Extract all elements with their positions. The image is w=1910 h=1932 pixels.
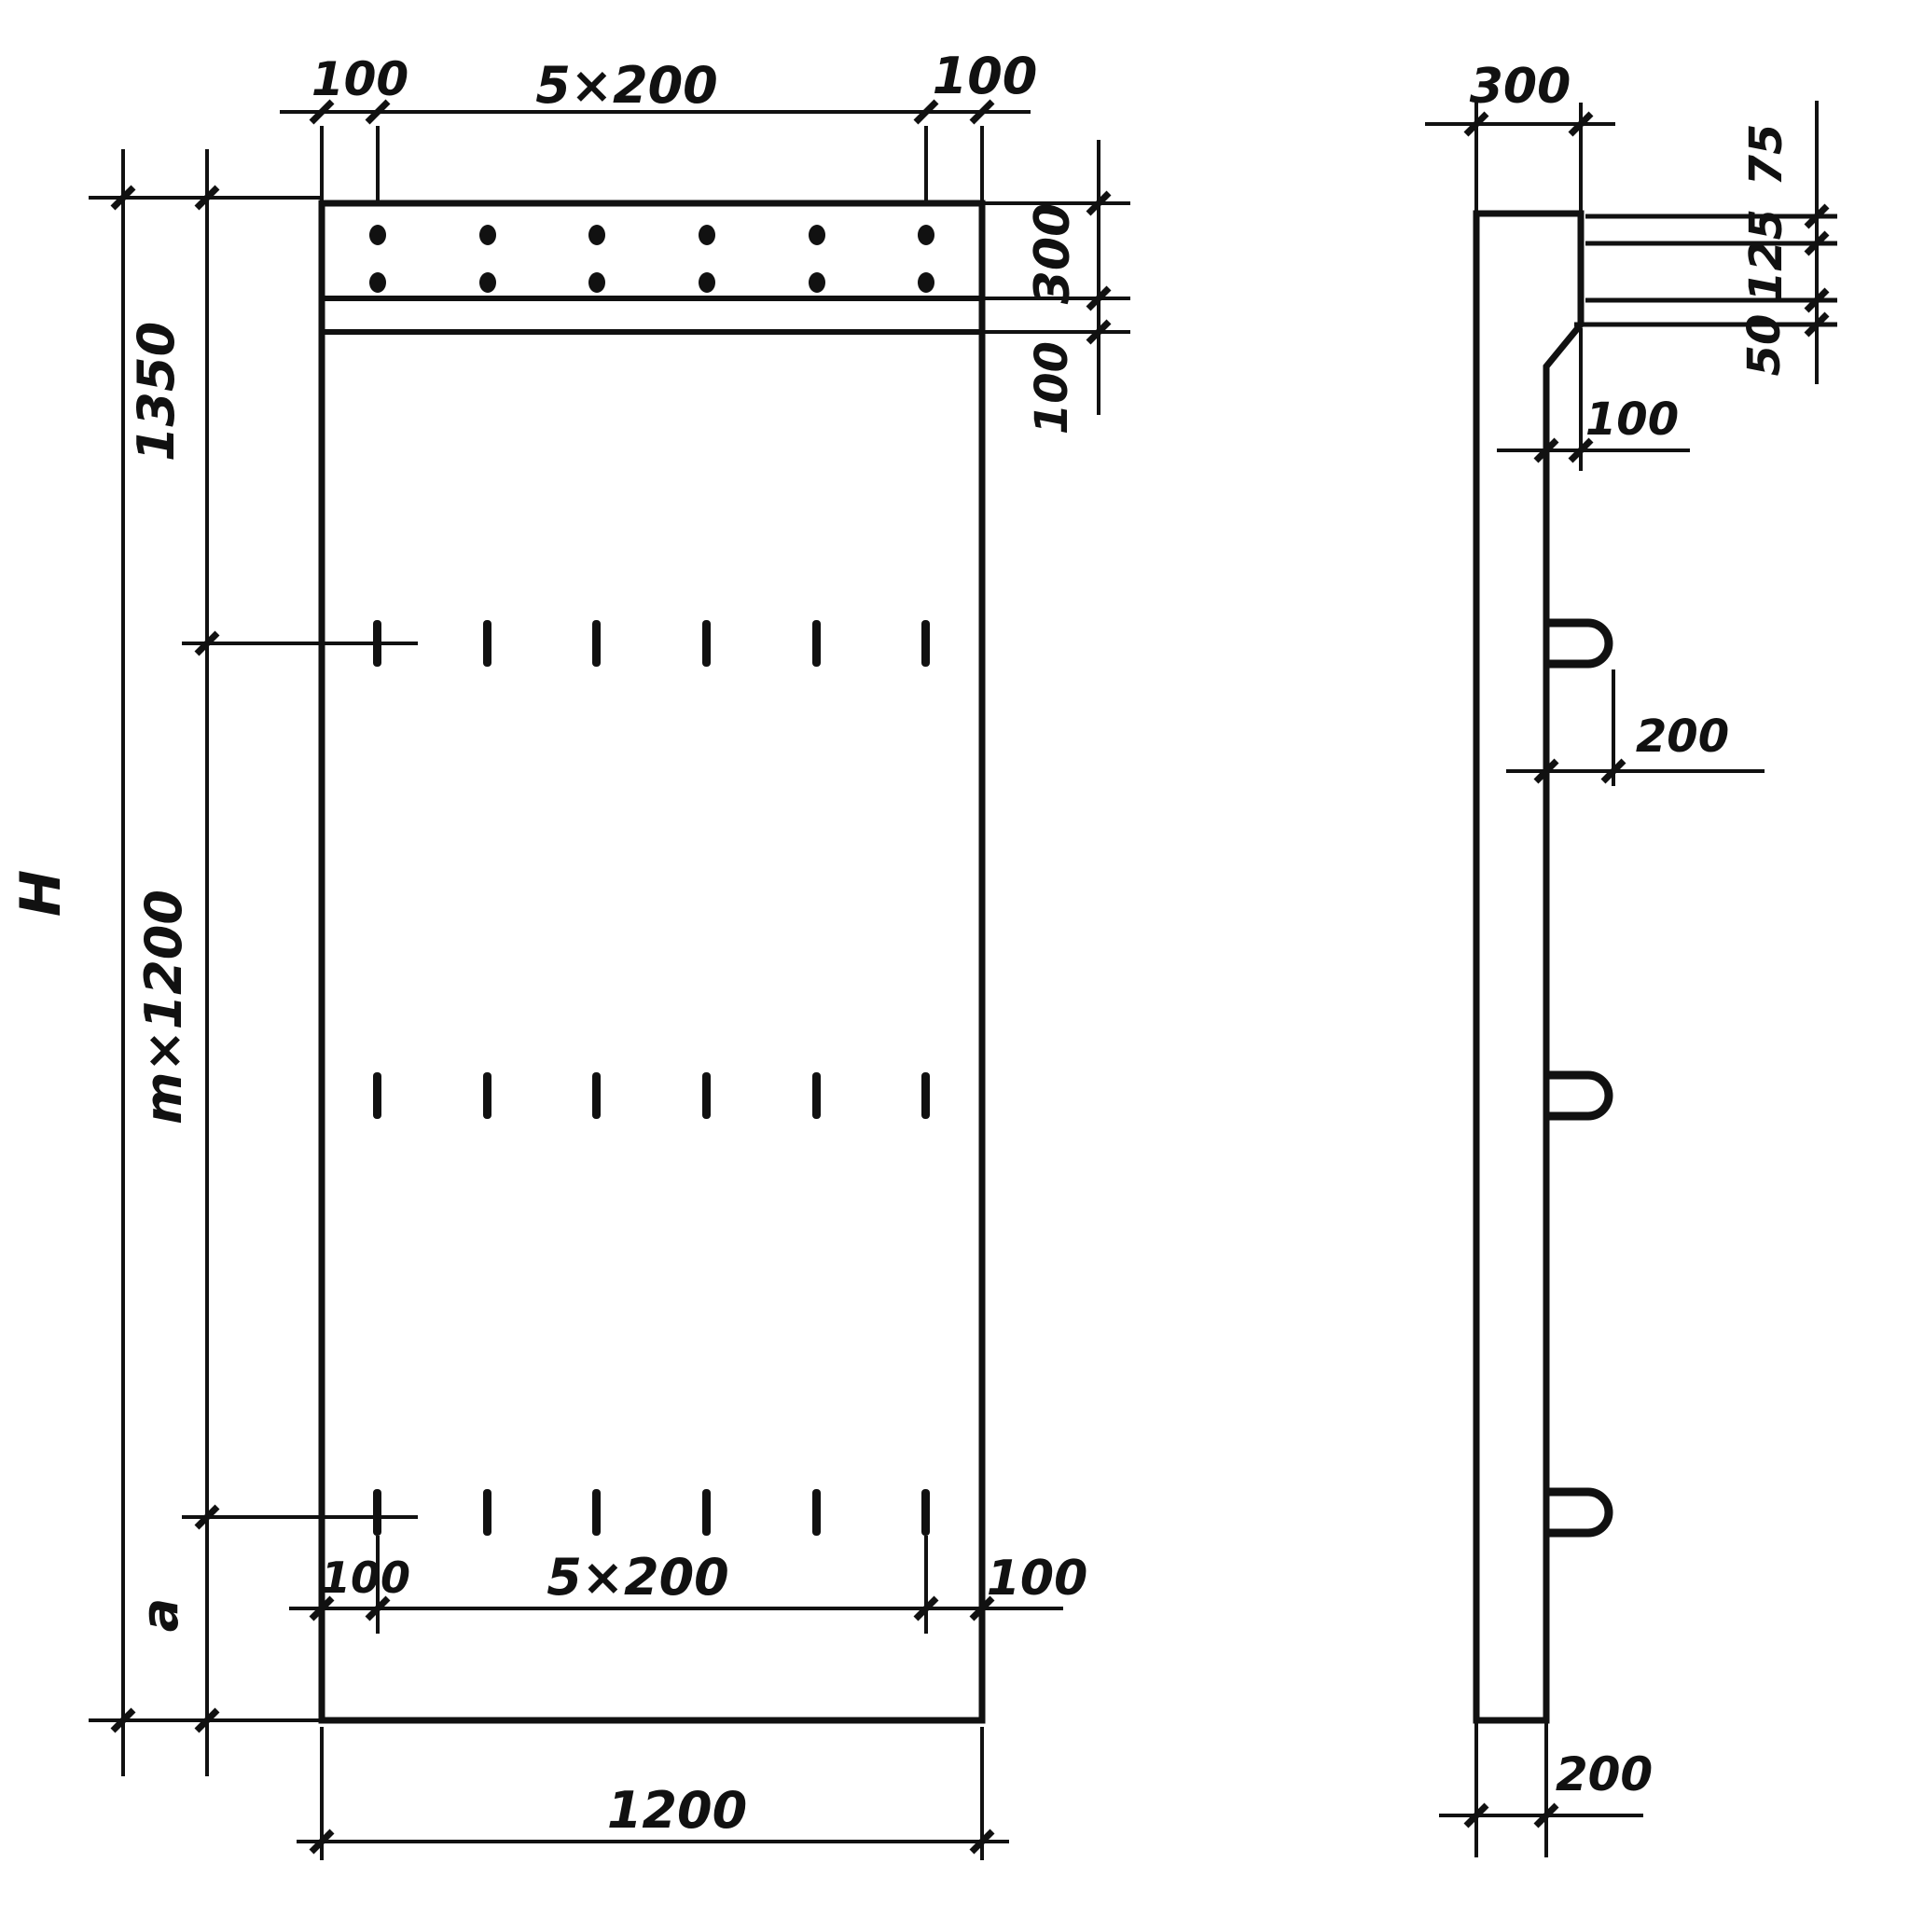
lifting-hook bbox=[1546, 1492, 1609, 1533]
technical-drawing: 100 5×200 100 300 100 1350 H m×1200 a bbox=[0, 0, 1910, 1932]
dim-label-sv-100: 100 bbox=[1585, 393, 1679, 446]
loop-dash bbox=[373, 1072, 381, 1119]
lifting-hook bbox=[1546, 623, 1609, 664]
anchor-dot bbox=[699, 272, 715, 293]
lifting-hook bbox=[1546, 1075, 1609, 1116]
loop-dash bbox=[921, 620, 930, 667]
dim-label-1350: 1350 bbox=[127, 322, 186, 462]
loop-dash bbox=[592, 620, 601, 667]
anchor-dot bbox=[809, 225, 825, 245]
anchor-dot bbox=[369, 225, 386, 245]
dim-label-bottom-right-100: 100 bbox=[987, 1551, 1088, 1607]
panel-outline bbox=[322, 203, 982, 1720]
loop-dash bbox=[702, 620, 711, 667]
dim-label-top-left-100: 100 bbox=[311, 52, 408, 106]
anchor-dot bbox=[699, 225, 715, 245]
dim-label-top-5x200: 5×200 bbox=[535, 56, 718, 115]
anchor-dot bbox=[918, 225, 934, 245]
loop-dash bbox=[812, 1072, 821, 1119]
front-view bbox=[322, 203, 982, 1720]
loop-dash bbox=[373, 1489, 381, 1536]
anchor-dot bbox=[369, 272, 386, 293]
dim-label-sv-75: 75 bbox=[1740, 124, 1792, 186]
dim-label-sv-300: 300 bbox=[1470, 59, 1571, 115]
anchor-dot bbox=[479, 272, 496, 293]
anchor-dot bbox=[588, 225, 605, 245]
loop-dash bbox=[921, 1072, 930, 1119]
dim-label-bottom-left-100: 100 bbox=[321, 1552, 410, 1603]
loop-dash bbox=[812, 1489, 821, 1536]
drawing-sheet: 100 5×200 100 300 100 1350 H m×1200 a bbox=[0, 0, 1910, 1932]
anchor-dot bbox=[479, 225, 496, 245]
dim-label-top-right-100: 100 bbox=[933, 47, 1038, 105]
loop-dash bbox=[592, 1072, 601, 1119]
dim-label-sv-125: 125 bbox=[1740, 209, 1792, 302]
loop-dash bbox=[921, 1489, 930, 1536]
loop-dash bbox=[812, 620, 821, 667]
dim-label-H: H bbox=[8, 870, 74, 917]
anchor-dot bbox=[918, 272, 934, 293]
loop-dash bbox=[702, 1489, 711, 1536]
loop-dash bbox=[592, 1489, 601, 1536]
dim-label-bottom-5x200: 5×200 bbox=[547, 1548, 729, 1607]
dim-label-right-100: 100 bbox=[1026, 341, 1078, 435]
dim-label-sv-bottom-200: 200 bbox=[1556, 1747, 1653, 1801]
dim-label-a: a bbox=[131, 1598, 189, 1632]
dim-label-sv-hook-200: 200 bbox=[1636, 711, 1729, 763]
loop-dash bbox=[483, 1489, 491, 1536]
loop-dash bbox=[483, 1072, 491, 1119]
dim-label-right-300: 300 bbox=[1025, 203, 1081, 305]
anchor-dot bbox=[588, 272, 605, 293]
dim-label-sv-50: 50 bbox=[1738, 314, 1791, 377]
loop-dash bbox=[702, 1072, 711, 1119]
anchor-dot bbox=[809, 272, 825, 293]
dim-label-1200: 1200 bbox=[607, 1781, 747, 1840]
dim-label-mx1200: m×1200 bbox=[134, 890, 193, 1125]
loop-dash bbox=[483, 620, 491, 667]
